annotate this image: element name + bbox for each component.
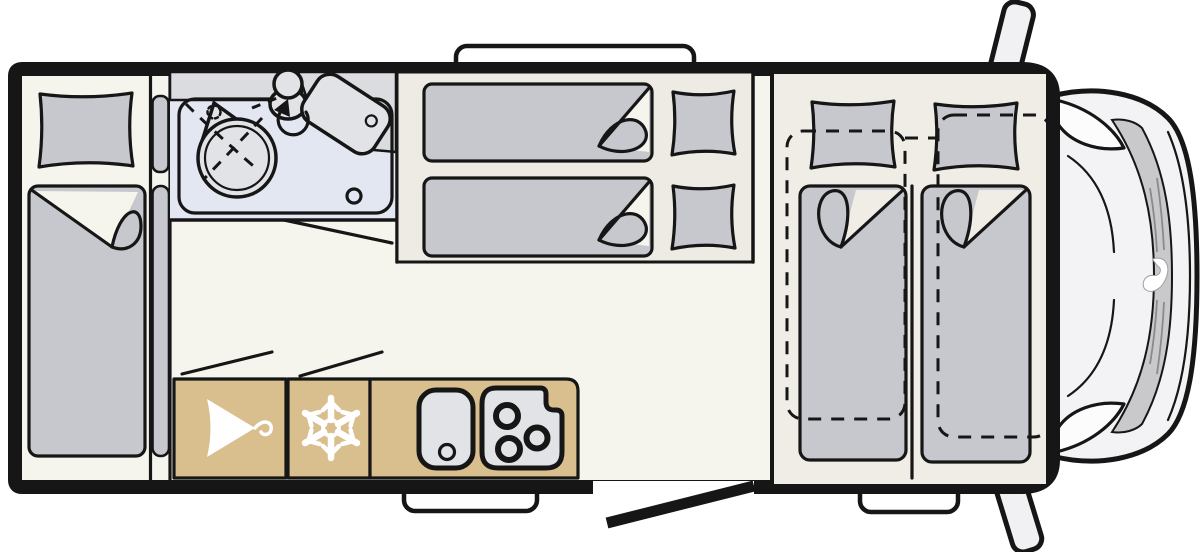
- folded-bed-pillow: [153, 96, 169, 172]
- pillow-left: [811, 101, 895, 168]
- floorplan-canvas: [0, 0, 1200, 552]
- refrigerator: [288, 379, 370, 478]
- middle-bedroom: [397, 70, 753, 262]
- pillow-lower: [672, 185, 735, 249]
- pillow-right: [934, 103, 1018, 170]
- folded-bed-mattress: [153, 186, 170, 456]
- sink-icon: [419, 390, 473, 468]
- floorplan-svg: [0, 0, 1200, 552]
- pillow-upper: [672, 91, 735, 155]
- front-bedroom: [772, 70, 1050, 484]
- pillow: [39, 93, 133, 167]
